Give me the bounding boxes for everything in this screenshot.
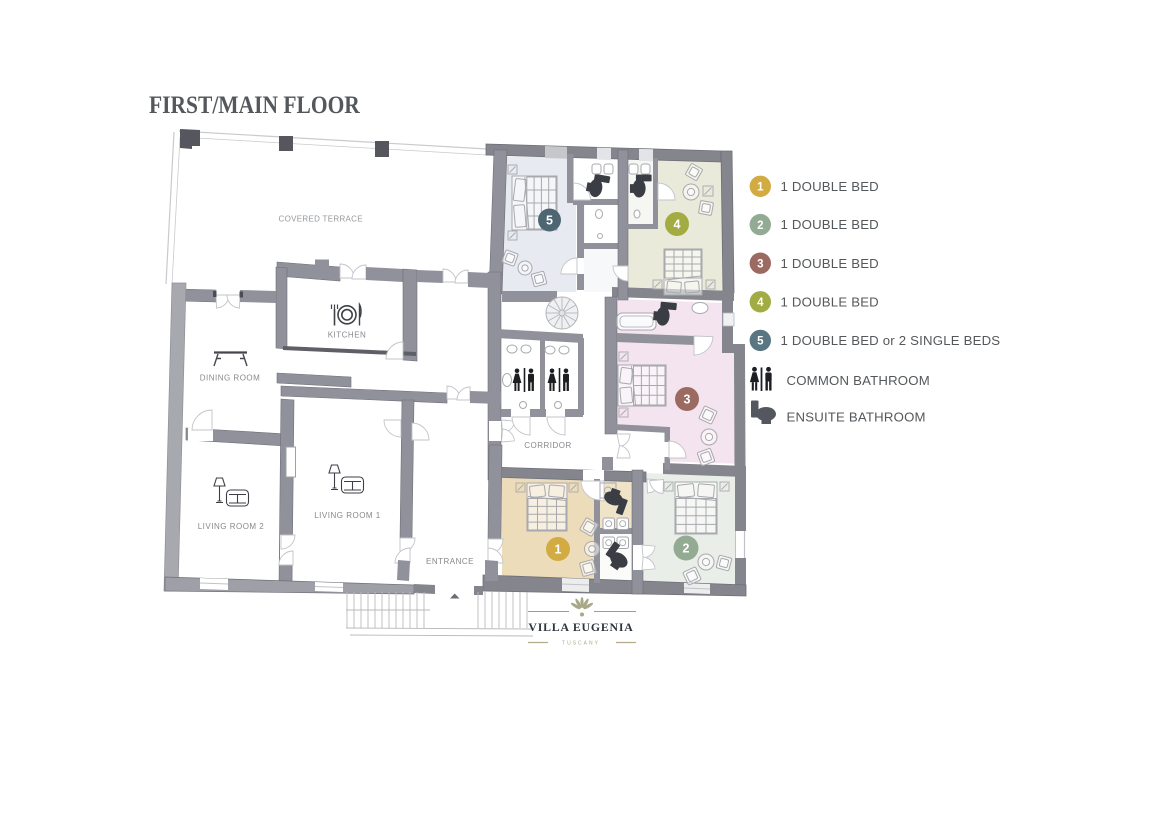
svg-text:2: 2	[683, 542, 690, 556]
svg-text:TUSCANY: TUSCANY	[562, 641, 600, 647]
svg-text:3: 3	[757, 258, 763, 270]
svg-text:COMMON BATHROOM: COMMON BATHROOM	[787, 373, 930, 388]
svg-text:1 DOUBLE BED or 2 SINGLE BEDS: 1 DOUBLE BED or 2 SINGLE BEDS	[781, 333, 1001, 348]
svg-text:CORRIDOR: CORRIDOR	[524, 441, 572, 450]
svg-text:3: 3	[684, 393, 691, 407]
svg-text:VILLA EUGENIA: VILLA EUGENIA	[528, 620, 633, 634]
svg-text:1: 1	[757, 182, 764, 194]
svg-text:2: 2	[757, 220, 763, 232]
svg-text:COVERED TERRACE: COVERED TERRACE	[279, 215, 363, 224]
svg-text:ENSUITE BATHROOM: ENSUITE BATHROOM	[787, 410, 926, 425]
svg-text:5: 5	[757, 336, 764, 348]
svg-text:DINING ROOM: DINING ROOM	[200, 374, 261, 383]
svg-text:1 DOUBLE BED: 1 DOUBLE BED	[781, 256, 879, 271]
svg-text:LIVING ROOM 2: LIVING ROOM 2	[198, 522, 265, 531]
svg-text:4: 4	[674, 218, 681, 232]
svg-text:1 DOUBLE BED: 1 DOUBLE BED	[781, 217, 879, 232]
svg-text:1 DOUBLE BED: 1 DOUBLE BED	[781, 294, 879, 309]
svg-text:5: 5	[546, 214, 553, 228]
svg-text:LIVING ROOM 1: LIVING ROOM 1	[314, 511, 381, 520]
svg-text:KITCHEN: KITCHEN	[328, 331, 367, 340]
svg-text:ENTRANCE: ENTRANCE	[426, 557, 474, 566]
svg-text:1 DOUBLE BED: 1 DOUBLE BED	[781, 179, 879, 194]
svg-text:4: 4	[757, 297, 764, 309]
svg-text:1: 1	[555, 543, 562, 557]
